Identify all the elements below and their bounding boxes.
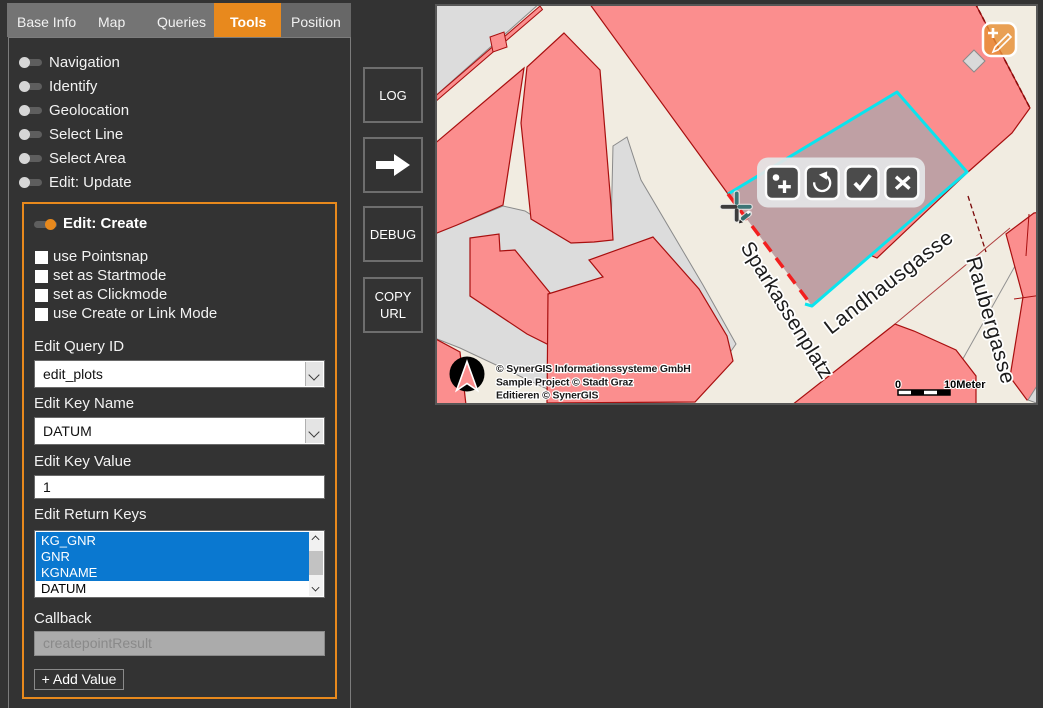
svg-text:Editieren © SynerGIS: Editieren © SynerGIS — [496, 391, 598, 402]
svg-text:0: 0 — [895, 379, 901, 391]
svg-text:10Meter: 10Meter — [944, 379, 986, 391]
svg-text:© SynerGIS Informationssysteme: © SynerGIS Informationssysteme GmbH — [496, 364, 691, 375]
svg-text:Sample Project © Stadt Graz: Sample Project © Stadt Graz — [496, 378, 633, 389]
